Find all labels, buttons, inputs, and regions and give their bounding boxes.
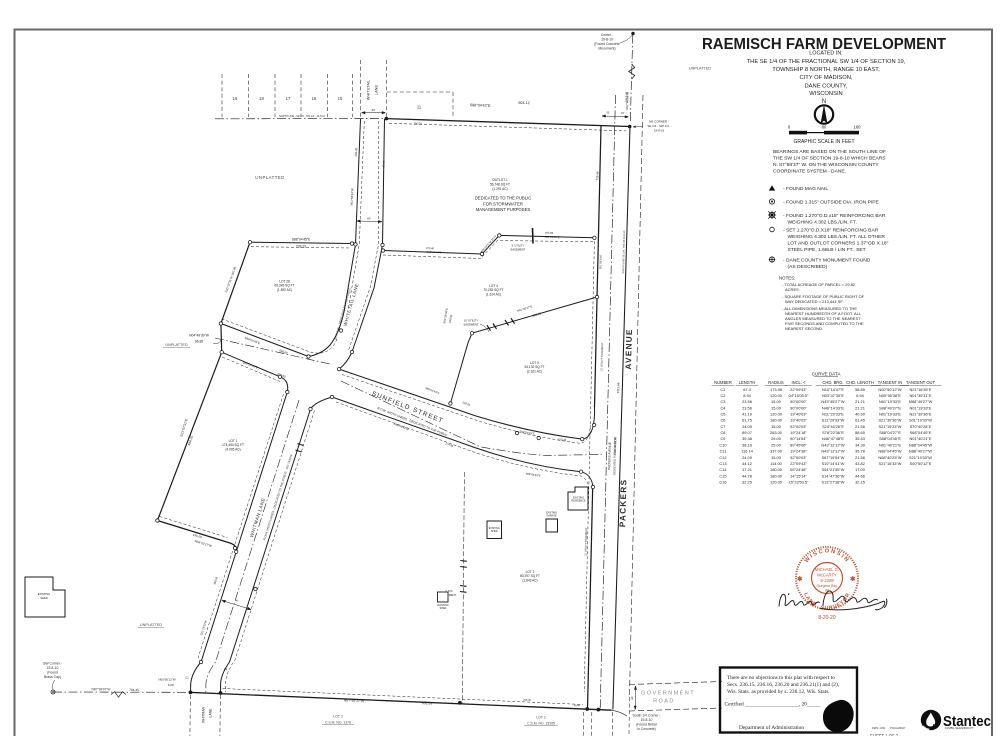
- svg-text:N. 87°58'37" W. ON THE WISCONS: N. 87°58'37" W. ON THE WISCONSIN COUNTY: [773, 162, 879, 168]
- svg-text:19-8-10: 19-8-10: [47, 666, 59, 670]
- svg-text:PCD-H20647: PCD-H20647: [890, 726, 906, 730]
- svg-text:128.02: 128.02: [462, 400, 472, 407]
- svg-text:C4: C4: [721, 405, 727, 410]
- svg-text:174.96: 174.96: [445, 441, 455, 448]
- svg-text:LOT AND OUTLOT CORNERS 1.37"OD: LOT AND OUTLOT CORNERS 1.37"OD X 18": [788, 241, 889, 247]
- svg-text:SHED: SHED: [40, 596, 48, 600]
- svg-text:05°24'48": 05°24'48": [790, 467, 807, 472]
- svg-text:(1.291 AC): (1.291 AC): [492, 187, 507, 191]
- svg-text:21.21: 21.21: [855, 405, 865, 410]
- svg-text:12' UTILITY EASEMENT: 12' UTILITY EASEMENT: [599, 342, 604, 371]
- svg-text:190.08: 190.08: [413, 121, 422, 125]
- svg-text:114.00: 114.00: [770, 461, 782, 466]
- svg-text:N21°16'35"E: N21°16'35"E: [909, 387, 931, 392]
- svg-text:N05°55'38"E: N05°55'38"E: [879, 393, 901, 398]
- svg-text:(Found Concrete: (Found Concrete: [594, 42, 620, 46]
- svg-text:RESIDENCE: RESIDENCE: [572, 500, 586, 503]
- svg-text:DVMBC-SE229/5000.PT: DVMBC-SE229/5000.PT: [945, 726, 974, 730]
- svg-text:S21°16'33"W: S21°16'33"W: [879, 461, 902, 466]
- svg-text:(Found Rebar: (Found Rebar: [636, 723, 658, 727]
- svg-text:C10: C10: [719, 442, 727, 447]
- svg-text:S10°14'41"W: S10°14'41"W: [822, 461, 845, 466]
- svg-text:C15: C15: [719, 473, 726, 478]
- svg-text:17.00: 17.00: [855, 467, 866, 472]
- svg-text:S01°56'34"E: S01°56'34"E: [598, 254, 602, 269]
- svg-text:LOT 3: LOT 3: [333, 715, 342, 719]
- svg-text:21.21: 21.21: [855, 399, 865, 404]
- svg-text:N01°19'33"E: N01°19'33"E: [879, 412, 901, 417]
- svg-text:N04°49'39"W: N04°49'39"W: [189, 334, 210, 338]
- svg-text:12' UTILITY EASEMENT: 12' UTILITY EASEMENT: [583, 527, 588, 556]
- svg-text:19-8-10: 19-8-10: [601, 38, 613, 42]
- svg-text:17: 17: [286, 96, 291, 101]
- svg-text:GRAPHIC SCALE IN FEET: GRAPHIC SCALE IN FEET: [793, 139, 854, 145]
- svg-text:34.39: 34.39: [855, 442, 865, 447]
- svg-text:NE CORNER -: NE CORNER -: [649, 120, 669, 124]
- svg-text:5' UTILITY: 5' UTILITY: [512, 244, 525, 248]
- svg-text:17.21: 17.21: [742, 467, 752, 472]
- svg-text:16: 16: [312, 96, 317, 101]
- svg-text:Monument): Monument): [598, 47, 615, 51]
- svg-text:S14°47'36"W: S14°47'36"W: [822, 473, 845, 478]
- svg-text:100.33: 100.33: [558, 437, 567, 442]
- svg-text:19-8-10: 19-8-10: [641, 718, 653, 722]
- svg-text:80: 80: [822, 125, 827, 130]
- svg-text:90°14'54": 90°14'54": [790, 436, 807, 441]
- svg-text:15.00: 15.00: [771, 424, 782, 429]
- svg-text:(Found: (Found: [47, 671, 58, 675]
- svg-text:8.94: 8.94: [856, 393, 864, 398]
- svg-text:236.60: 236.60: [279, 348, 289, 355]
- svg-text:N46°23'51"W 23.73: N46°23'51"W 23.73: [480, 235, 497, 254]
- svg-text:C6: C6: [721, 418, 726, 423]
- svg-text:C1: C1: [721, 387, 726, 392]
- svg-text:N00°50'12"W: N00°50'12"W: [878, 387, 901, 392]
- svg-text:C.S.M. NO. 15395: C.S.M. NO. 15395: [527, 722, 555, 726]
- svg-text:NUMBER: NUMBER: [714, 380, 732, 385]
- svg-text:10' UTILITY: 10' UTILITY: [464, 319, 478, 323]
- svg-text:220.40: 220.40: [426, 246, 435, 250]
- svg-text:19°40'03": 19°40'03": [790, 412, 807, 417]
- svg-text:21.56: 21.56: [855, 424, 865, 429]
- svg-text:238.29: 238.29: [296, 245, 306, 249]
- svg-text:S88°40'27"E: S88°40'27"E: [879, 405, 901, 410]
- svg-text:(AS DESCRIBED): (AS DESCRIBED): [788, 264, 828, 270]
- svg-text:44.66: 44.66: [855, 473, 865, 478]
- svg-text:S11°29'33"W: S11°29'33"W: [822, 418, 845, 423]
- svg-text:23.56: 23.56: [742, 405, 752, 410]
- svg-text:88.65: 88.65: [855, 430, 865, 435]
- svg-text:Department of Administration: Department of Administration: [739, 724, 804, 731]
- svg-text:Secs. 236.15, 236.16, 236.20 a: Secs. 236.15, 236.16, 236.20 and 236.21(…: [727, 681, 840, 688]
- svg-text:✱: ✱: [850, 575, 857, 583]
- svg-text:LANE: LANE: [209, 708, 213, 718]
- svg-text:33': 33': [606, 112, 610, 115]
- svg-text:S01°19'33"W: S01°19'33"W: [909, 418, 932, 423]
- svg-text:6.00': 6.00': [168, 683, 175, 687]
- svg-text:INCL. <: INCL. <: [792, 380, 807, 385]
- svg-text:38.16: 38.16: [742, 442, 752, 447]
- svg-text:S88°04'45"E: S88°04'45"E: [292, 238, 311, 242]
- svg-text:S-2289: S-2289: [820, 578, 834, 583]
- svg-text:15.00: 15.00: [771, 399, 782, 404]
- svg-text:N68°42'27"W: N68°42'27"W: [194, 539, 212, 548]
- svg-text:19°24'38": 19°24'38": [790, 449, 807, 454]
- svg-text:C14: C14: [719, 467, 727, 472]
- svg-text:21.56: 21.56: [855, 455, 865, 460]
- svg-text:35.78: 35.78: [855, 449, 865, 454]
- svg-text:58.85: 58.85: [855, 387, 865, 392]
- svg-text:15.00: 15.00: [771, 405, 782, 410]
- svg-text:GARAGE: GARAGE: [546, 515, 557, 518]
- svg-text:C8: C8: [721, 430, 726, 435]
- svg-text:90°00'00": 90°00'00": [790, 399, 807, 404]
- svg-text:Center -: Center -: [601, 33, 613, 37]
- svg-text:ACRES: ACRES: [785, 287, 799, 292]
- svg-text:EASEMENT: EASEMENT: [464, 323, 479, 327]
- svg-text:60.00: 60.00: [574, 704, 581, 707]
- svg-text:WISCONSIN: WISCONSIN: [809, 91, 843, 97]
- svg-text:C1: C1: [185, 676, 189, 680]
- svg-text:180.00: 180.00: [770, 418, 783, 423]
- svg-text:15: 15: [338, 96, 343, 101]
- svg-text:MANAGEMENT PURPOSES: MANAGEMENT PURPOSES: [476, 207, 531, 212]
- svg-text:180.00: 180.00: [770, 467, 783, 472]
- svg-text:25.00: 25.00: [771, 436, 782, 441]
- svg-text:Certified ____________________: Certified ____________________, 20_____: [725, 701, 821, 708]
- svg-text:TANGENT IN: TANGENT IN: [878, 380, 902, 385]
- svg-text:- FOUND MAG NAIL: - FOUND MAG NAIL: [783, 186, 828, 192]
- svg-text:11: 11: [417, 105, 422, 110]
- svg-text:South 1/4 Corner -: South 1/4 Corner -: [633, 714, 661, 718]
- svg-text:NOTES:: NOTES:: [779, 276, 795, 281]
- svg-text:92°00'03": 92°00'03": [790, 424, 807, 429]
- svg-text:SHED: SHED: [440, 607, 447, 610]
- svg-text:23.56: 23.56: [742, 399, 752, 404]
- svg-text:N: N: [822, 99, 826, 105]
- svg-text:120.00: 120.00: [770, 480, 783, 485]
- svg-text:281.81: 281.81: [354, 147, 358, 157]
- svg-text:OUTLOT 1: OUTLOT 1: [492, 178, 508, 182]
- svg-text:C2: C2: [224, 667, 228, 671]
- svg-text:N21°07'31"W 192.99: N21°07'31"W 192.99: [224, 266, 237, 293]
- svg-text:LOCATED IN:: LOCATED IN:: [809, 50, 842, 56]
- svg-text:N01°56'34"W: N01°56'34"W: [350, 188, 355, 206]
- svg-text:PACKERS AVENUE: PACKERS AVENUE: [607, 442, 612, 470]
- svg-text:89.07: 89.07: [742, 430, 752, 435]
- svg-text:33': 33': [621, 112, 625, 115]
- svg-text:S88°04'43"E: S88°04'43"E: [426, 250, 441, 255]
- svg-text:205.89: 205.89: [545, 231, 554, 235]
- svg-text:120.00: 120.00: [770, 412, 783, 417]
- svg-text:CHD. LENGTH: CHD. LENGTH: [846, 380, 874, 385]
- svg-text:8.94: 8.94: [743, 393, 751, 398]
- svg-text:Brass Cap): Brass Cap): [44, 675, 61, 679]
- svg-text:15°23'53.5": 15°23'53.5": [789, 480, 810, 485]
- svg-text:337.00: 337.00: [770, 449, 783, 454]
- svg-text:349.92: 349.92: [448, 314, 454, 324]
- svg-text:C11: C11: [720, 449, 727, 454]
- svg-text:N21°39'36"E: N21°39'36"E: [909, 412, 931, 417]
- svg-text:04°16'05.5": 04°16'05.5": [789, 393, 810, 398]
- svg-text:C2: C2: [721, 393, 726, 398]
- svg-text:N43°12'12"W: N43°12'12"W: [821, 449, 844, 454]
- svg-text:19-8-19: 19-8-19: [654, 129, 665, 133]
- svg-text:LOT 2: LOT 2: [536, 716, 545, 720]
- svg-text:369.65: 369.65: [212, 576, 219, 586]
- svg-text:There are no objections to thi: There are no objections to this plat wit…: [727, 675, 835, 681]
- svg-text:TANGENT OUT: TANGENT OUT: [906, 380, 935, 385]
- svg-text:MICHAEL G.: MICHAEL G.: [815, 567, 839, 572]
- svg-text:M88°40'27"W: M88°40'27"W: [909, 399, 933, 404]
- svg-text:DWN. CKD.: DWN. CKD.: [872, 726, 886, 730]
- svg-text:RADIUS: RADIUS: [768, 380, 784, 385]
- svg-text:N68°40'25"W: N68°40'25"W: [878, 455, 901, 460]
- svg-text:UNPLATTED: UNPLATTED: [165, 343, 188, 347]
- svg-text:- FOUND 1.270"O.D.x18" REINFOR: - FOUND 1.270"O.D.x18" REINFORCING BAR: [783, 213, 886, 219]
- svg-text:WEIGHING 4.302 LBS./LIN. FT. A: WEIGHING 4.302 LBS./LIN. FT. ALL OTHER: [788, 234, 886, 240]
- svg-text:NEAREST SECOND.: NEAREST SECOND.: [785, 326, 823, 331]
- svg-text:LANE: LANE: [374, 85, 379, 96]
- svg-text:WAY DEDICATED = 213,444 SF: WAY DEDICATED = 213,444 SF: [785, 299, 843, 304]
- svg-text:35.43: 35.43: [855, 436, 865, 441]
- svg-text:19°24'18": 19°24'18": [790, 430, 807, 435]
- svg-text:N87°59'37"W: N87°59'37"W: [92, 687, 111, 691]
- svg-text:40.99: 40.99: [855, 412, 865, 417]
- svg-text:THE SW 1/4 OF SECTION 19-8-10: THE SW 1/4 OF SECTION 19-8-10 WHICH BEAR…: [773, 156, 886, 162]
- svg-text:WEIGHING 4.302 LBS./LIN. FT.: WEIGHING 4.302 LBS./LIN. FT.: [788, 220, 857, 226]
- svg-text:N00°50'12"W: N00°50'12"W: [158, 678, 175, 682]
- svg-text:236.16: 236.16: [532, 311, 542, 317]
- svg-text:S21°19'33"W: S21°19'33"W: [199, 619, 208, 636]
- svg-text:S04°21'55"W: S04°21'55"W: [822, 467, 845, 472]
- svg-text:WHITETAIL: WHITETAIL: [366, 79, 371, 100]
- svg-text:S00°50'12"E: S00°50'12"E: [910, 461, 932, 466]
- svg-text:S88°04'45"E: S88°04'45"E: [879, 436, 901, 441]
- svg-text:in Concrete): in Concrete): [637, 727, 655, 731]
- svg-text:61.75: 61.75: [742, 418, 752, 423]
- svg-text:N03°47'35"E: N03°47'35"E: [822, 393, 844, 398]
- svg-text:S88°04'43"E: S88°04'43"E: [470, 103, 491, 108]
- svg-text:S24°40'28"E: S24°40'28"E: [822, 424, 844, 429]
- svg-text:THE SE 1/4 OF THE FRACTIONAL S: THE SE 1/4 OF THE FRACTIONAL SW 1/4 OF S…: [747, 59, 906, 65]
- svg-text:SHED: SHED: [491, 530, 498, 533]
- svg-text:92°00'03": 92°00'03": [790, 455, 807, 460]
- svg-text:61.45: 61.45: [855, 418, 865, 423]
- svg-text:C3: C3: [721, 399, 726, 404]
- svg-text:735.06: 735.06: [595, 171, 599, 181]
- svg-text:S13°27'38"W: S13°27'38"W: [822, 480, 845, 485]
- svg-text:S21°19'33"W: S21°19'33"W: [909, 455, 932, 460]
- svg-text:- FOUND 1.315" OUTSIDE DIA. IR: - FOUND 1.315" OUTSIDE DIA. IRON PIPE: [783, 200, 880, 206]
- svg-text:EASEMENT: EASEMENT: [511, 248, 526, 252]
- svg-text:- DANE COUNTY MONUMENT FOUND: - DANE COUNTY MONUMENT FOUND: [783, 258, 871, 264]
- svg-text:Sturgeon Bay,: Sturgeon Bay,: [816, 584, 837, 588]
- svg-text:24.09: 24.09: [742, 424, 752, 429]
- svg-text:41.19: 41.19: [742, 412, 752, 417]
- svg-text:N10°14'47"E: N10°14'47"E: [822, 387, 844, 392]
- svg-text:C5: C5: [721, 412, 726, 417]
- svg-text:(1.592 AC): (1.592 AC): [277, 288, 292, 292]
- svg-text:EXISTING: EXISTING: [38, 592, 51, 596]
- svg-text:32.15: 32.15: [855, 480, 865, 485]
- svg-text:FOR STORMWATER: FOR STORMWATER: [483, 201, 523, 206]
- svg-text:✱: ✱: [797, 575, 804, 583]
- svg-text:19: 19: [233, 96, 238, 101]
- svg-text:N46°14'33"E: N46°14'33"E: [822, 405, 844, 410]
- svg-text:S21°39'36"W: S21°39'36"W: [879, 418, 902, 423]
- svg-text:704.45: 704.45: [129, 688, 139, 692]
- svg-text:404.26: 404.26: [187, 435, 194, 446]
- svg-text:N01°39'31"E: N01°39'31"E: [909, 393, 931, 398]
- svg-text:UNPLATTED: UNPLATTED: [255, 175, 284, 180]
- svg-text:15.00: 15.00: [771, 455, 782, 460]
- svg-text:DEDICATED TO THE PUBLIC: DEDICATED TO THE PUBLIC: [612, 437, 617, 475]
- svg-text:N46°47'48"E: N46°47'48"E: [822, 436, 844, 441]
- svg-text:604.12: 604.12: [518, 101, 529, 105]
- svg-text:22°09'43": 22°09'43": [790, 387, 807, 392]
- svg-text:89°45'06": 89°45'06": [790, 442, 807, 447]
- svg-text:S88°04'43"E: S88°04'43"E: [544, 235, 559, 239]
- svg-text:S78°22'36"E: S78°22'36"E: [822, 430, 844, 435]
- svg-text:39.38: 39.38: [742, 436, 752, 441]
- svg-text:C16: C16: [719, 480, 726, 485]
- svg-text:180.00: 180.00: [770, 473, 783, 478]
- svg-text:NORTH LINE - SE 1/4 - SW 1/4 -: NORTH LINE - SE 1/4 - SW 1/4 - 19-8-10: [279, 115, 326, 118]
- svg-text:952.33: 952.33: [422, 701, 433, 705]
- svg-text:TOWNSHIP 8 NORTH, RANGE 10 EAS: TOWNSHIP 8 NORTH, RANGE 10 EAST,: [772, 67, 880, 73]
- svg-text:40': 40': [235, 598, 240, 603]
- svg-text:PACKERS: PACKERS: [618, 479, 628, 528]
- svg-text:66': 66': [630, 696, 634, 700]
- svg-text:McCARTY: McCARTY: [817, 573, 837, 578]
- svg-text:N43°45'27"W: N43°45'27"W: [821, 399, 844, 404]
- svg-text:SE 1/4 - SW 1/4 -: SE 1/4 - SW 1/4 -: [647, 124, 670, 128]
- svg-text:R.O.W. WIDTH VARIES - DEDICATE: R.O.W. WIDTH VARIES - DEDICATED TO THE P…: [262, 471, 288, 541]
- svg-text:S67°10'54"W: S67°10'54"W: [822, 455, 845, 460]
- svg-text:COORDINATE SYSTEM - DANE.: COORDINATE SYSTEM - DANE.: [773, 169, 846, 175]
- svg-text:60': 60': [372, 108, 376, 112]
- svg-text:(2.161 AC): (2.161 AC): [527, 369, 542, 373]
- svg-text:25.00: 25.00: [771, 442, 782, 447]
- svg-text:N88°04'45"W: N88°04'45"W: [878, 449, 901, 454]
- svg-text:298.30: 298.30: [523, 698, 532, 702]
- svg-text:18: 18: [259, 96, 264, 101]
- svg-text:N02°40'26"W: N02°40'26"W: [625, 92, 630, 110]
- svg-text:29.04: 29.04: [381, 160, 385, 167]
- svg-text:N43°12'12"W: N43°12'12"W: [821, 442, 844, 447]
- svg-text:(1.843 AC): (1.843 AC): [522, 578, 537, 582]
- svg-text:N81°40'17"E: N81°40'17"E: [517, 304, 533, 313]
- svg-text:32.25: 32.25: [742, 480, 752, 485]
- svg-text:44.12: 44.12: [742, 461, 752, 466]
- svg-text:43.82: 43.82: [855, 461, 865, 466]
- svg-text:S88°04'43"E: S88°04'43"E: [425, 386, 441, 395]
- svg-text:S68°04'45"E: S68°04'45"E: [910, 430, 932, 435]
- svg-text:120.00: 120.00: [770, 393, 783, 398]
- svg-text:N01°40'21"E: N01°40'21"E: [879, 442, 901, 447]
- svg-text:(4.005 AC): (4.005 AC): [225, 447, 240, 451]
- svg-text:STEEL PIPE, 1.68LB / LIN FT.,: STEEL PIPE, 1.68LB / LIN FT., SET: [788, 247, 866, 253]
- svg-text:N88°04'45"W: N88°04'45"W: [909, 442, 932, 447]
- svg-text:N01°19'33"E: N01°19'33"E: [879, 399, 901, 404]
- svg-text:CITY OF MADISON,: CITY OF MADISON,: [799, 75, 852, 81]
- svg-text:WHITMAN: WHITMAN: [202, 706, 206, 723]
- svg-text:N01°19'33"E: N01°19'33"E: [909, 405, 931, 410]
- svg-text:14°15'14": 14°15'14": [790, 473, 807, 478]
- svg-text:DEDICATED TO THE PUBLIC: DEDICATED TO THE PUBLIC: [475, 196, 531, 201]
- svg-text:C12: C12: [719, 455, 726, 460]
- svg-text:CURVE DATA: CURVE DATA: [812, 372, 842, 377]
- svg-text:S21°19'33"W: S21°19'33"W: [879, 424, 902, 429]
- svg-text:GOVERNMENT: GOVERNMENT: [641, 691, 695, 697]
- svg-text:C9: C9: [721, 436, 726, 441]
- svg-text:N88°40'27"W: N88°40'27"W: [909, 449, 932, 454]
- svg-text:DANE COUNTY,: DANE COUNTY,: [804, 83, 847, 89]
- svg-text:1313.66: 1313.66: [616, 382, 620, 393]
- svg-text:22°09'43": 22°09'43": [790, 461, 807, 466]
- svg-text:S88°04'27"E: S88°04'27"E: [879, 430, 901, 435]
- svg-text:AVENUE: AVENUE: [624, 328, 634, 370]
- svg-text:ROAD: ROAD: [653, 699, 675, 705]
- svg-text:263.00: 263.00: [770, 430, 783, 435]
- svg-text:160: 160: [854, 125, 862, 130]
- svg-text:116.14: 116.14: [741, 449, 753, 454]
- svg-text:60': 60': [367, 217, 371, 221]
- svg-text:66.85: 66.85: [195, 340, 203, 344]
- svg-text:67.3: 67.3: [743, 387, 751, 392]
- svg-text:90°00'00": 90°00'00": [790, 405, 807, 410]
- svg-text:S70°40'28"E: S70°40'28"E: [910, 424, 932, 429]
- svg-text:8-20-20: 8-20-20: [818, 615, 835, 621]
- svg-text:C.S.M. NO. 1376: C.S.M. NO. 1376: [325, 721, 351, 725]
- svg-text:LENGTH: LENGTH: [739, 380, 756, 385]
- svg-text:56,748 SQ FT: 56,748 SQ FT: [490, 183, 510, 187]
- svg-text:CHD. BRG.: CHD. BRG.: [822, 380, 843, 385]
- svg-text:SW Corner -: SW Corner -: [43, 662, 62, 666]
- svg-text:BEARINGS ARE BASED ON THE SOUT: BEARINGS ARE BASED ON THE SOUTH LINE OF: [773, 149, 886, 155]
- svg-text:(1.614 AC): (1.614 AC): [486, 292, 501, 296]
- svg-text:C7: C7: [721, 424, 726, 429]
- svg-text:S21°07'31"E: S21°07'31"E: [179, 418, 188, 438]
- svg-text:24.09: 24.09: [742, 455, 752, 460]
- svg-text:44.78: 44.78: [742, 473, 752, 478]
- svg-text:19°40'03": 19°40'03": [790, 418, 807, 423]
- svg-text:Wis. Stats. as provided by s.: Wis. Stats. as provided by s. 236.12, Wi…: [727, 689, 830, 695]
- svg-text:N87°59'37"W: N87°59'37"W: [344, 698, 365, 703]
- svg-text:UNPLATTED: UNPLATTED: [689, 67, 712, 71]
- svg-text:UNPLATTED: UNPLATTED: [140, 623, 163, 627]
- svg-text:- SET 1.270"O.D.X18" REINFORCI: - SET 1.270"O.D.X18" REINFORCING BAR: [783, 228, 879, 234]
- svg-text:N01°40'21"E: N01°40'21"E: [909, 436, 931, 441]
- svg-text:S88°04'43"E: S88°04'43"E: [525, 471, 541, 477]
- svg-text:C13: C13: [719, 461, 726, 466]
- svg-text:N11°29'33"E: N11°29'33"E: [822, 412, 844, 417]
- svg-text:173.98: 173.98: [770, 387, 782, 392]
- svg-text:0: 0: [788, 125, 791, 130]
